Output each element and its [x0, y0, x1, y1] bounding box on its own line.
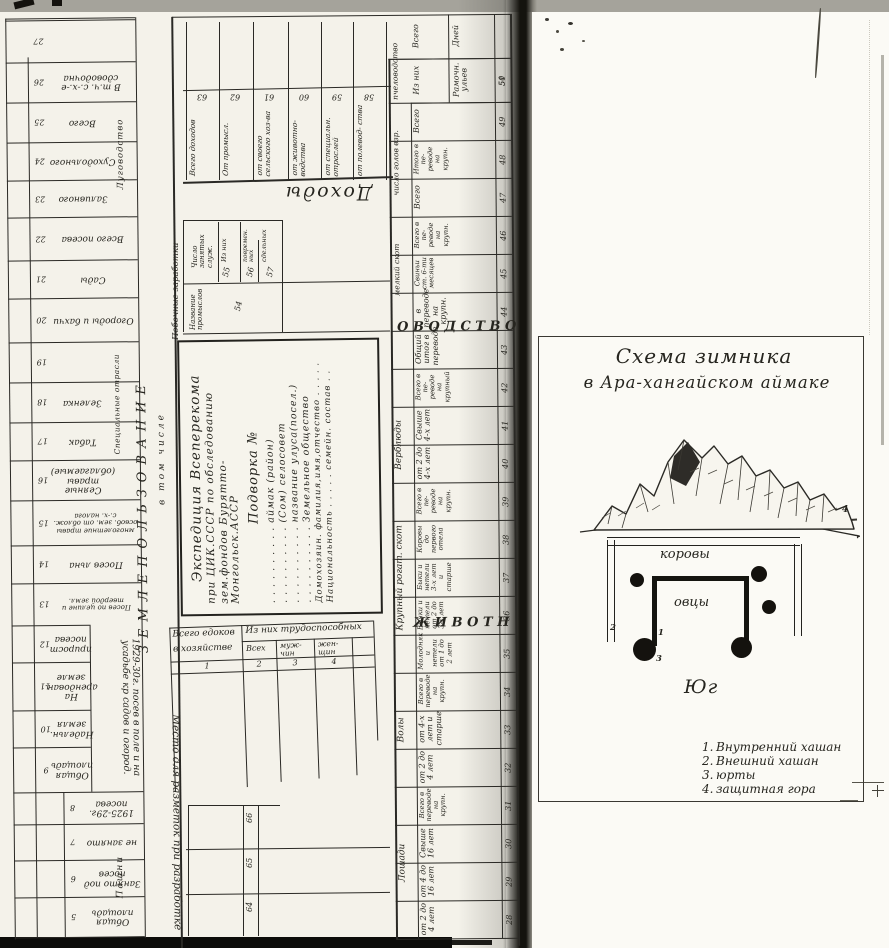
ls-col-number: 28 [506, 911, 518, 925]
ls-col-number: 40 [502, 455, 514, 469]
inner-number: 1 [658, 629, 664, 638]
ls-col-53-label: Дней [452, 16, 492, 55]
ls-col-text: Быки и нетели 3-х лет и старше [417, 560, 453, 593]
ls-col-text: Свыше 16 лет [419, 827, 436, 860]
ls-col-29-label: от 4 до 16 лет [419, 864, 499, 898]
ls-group-text: Лошади [398, 787, 409, 939]
ls-col-number: 39 [502, 493, 514, 507]
ls-col-49-label: Всего [413, 104, 493, 138]
ls-col-text: Свиньи ст. 6-ти месяцев [414, 257, 436, 290]
yurt-number: 3 [656, 655, 662, 664]
ls-col-number: 44 [501, 303, 513, 317]
legend-item: 1.Внутренний хашан [702, 741, 862, 755]
ls-col-text: Всего в пе- реводе на крупный [415, 370, 451, 403]
ls-col-number: 31 [505, 797, 517, 811]
ls-group-label: Верблюды [394, 407, 413, 483]
ls-col-30-label: Свыше 16 лет [419, 826, 499, 860]
ls-group-text: Волы [397, 673, 407, 787]
big-label-2: О В О Д С Т В О [387, 320, 527, 335]
yurt-dot [762, 600, 776, 614]
ls-col-47-label: Всего [413, 180, 493, 214]
ls-col-text: от 2 до 4 лет [420, 903, 437, 936]
ls-col-48-label: Итого в пе- реводе на крупн. [413, 142, 493, 176]
mountain-sketch [578, 412, 860, 548]
ls-col-number: 45 [500, 265, 512, 279]
ls-col-50-label: Из них [412, 60, 446, 99]
ls-col-38-label: Коровы до первого отела [416, 522, 496, 556]
ls-col-text: Рамочн. ульев [452, 60, 469, 99]
ls-col-text: от 2 до 4 лет [418, 751, 435, 784]
ls-col-41-label: Свыше 4-х лет [415, 408, 495, 442]
yurt-dot [731, 637, 752, 658]
ls-col-text: Дней [452, 16, 461, 55]
ls-col-text: Общий итог в переводе [415, 332, 440, 365]
big-label-1: Ж И В О Т Н [395, 616, 527, 631]
ls-col-text: от 2 до 4-х лет [416, 447, 433, 480]
legend-text: юрты [716, 769, 755, 782]
ls-col-number: 38 [503, 531, 515, 545]
ls-col-text: Из них [412, 61, 421, 100]
legend-item: 3.юрты [702, 769, 862, 783]
ls-col-52-label: Всего [412, 16, 446, 55]
yurt-dot [633, 638, 656, 661]
ls-col-37-label: Быки и нетели 3-х лет и старше [417, 560, 497, 594]
ls-col-number: 29 [505, 873, 517, 887]
ls-col-42-label: Всего в пе- реводе на крупный [415, 370, 495, 404]
ls-col-text: от 4 до 16 лет [419, 865, 436, 898]
ls-group-label: мелкий скот [393, 209, 412, 331]
ls-col-text: Коровы до первого отела [416, 522, 445, 555]
diagram-title-2: в Ара-хангайском аймаке [562, 374, 852, 391]
mountain-number: 4 [842, 506, 848, 515]
ls-col-text: Всего в пе- реводе на крупн. [414, 218, 450, 251]
ls-col-number: 48 [499, 151, 511, 165]
sheep-label: овцы [674, 596, 709, 610]
ls-group-label: Лошади [398, 787, 417, 939]
diagram-title-1: Схема зимника [594, 346, 814, 367]
yurt-dot [751, 566, 767, 582]
ls-col-text: от 4-х лет и старше [418, 712, 443, 745]
ls-col-number: 46 [500, 227, 512, 241]
legend-item: 4.защитная гора [702, 783, 862, 797]
ls-col-43-label: Общий итог в переводе [415, 332, 495, 366]
ls-col-35-label: Молодняк и нетели от 1 до 2 лет [417, 636, 497, 670]
ls-col-number: 42 [501, 379, 513, 393]
ls-col-number: 47 [500, 189, 512, 203]
ls-group-label: Крупный рогат. скот [395, 483, 415, 673]
inner-khashan-left [652, 576, 657, 646]
ls-col-number: 30 [505, 835, 517, 849]
ls-col-number: 35 [504, 645, 516, 659]
ls-col-number: 49 [499, 113, 511, 127]
ls-col-40-label: от 2 до 4-х лет [416, 446, 496, 480]
ls-group-label: пчеловодство [391, 29, 410, 114]
cows-label: коровы [660, 548, 710, 562]
ls-col-33-label: от 4-х лет и старше [418, 712, 498, 746]
ls-col-number: 33 [504, 721, 516, 735]
ls-col-number: 41 [502, 417, 514, 431]
ls-col-text: Всего [413, 181, 422, 214]
legend-number: 4. [702, 783, 713, 796]
ls-col-text: Всего в переводе на крупн. [418, 674, 447, 707]
south-label: Юг [684, 678, 718, 698]
ls-col-28-label: от 2 до 4 лет [420, 902, 500, 936]
legend-text: защитная гора [716, 783, 816, 796]
ls-col-text: Итого в пе- реводе на крупн. [413, 142, 449, 175]
ls-col-45-label: Свиньи ст. 6-ти месяцев [414, 256, 494, 290]
ls-col-text: Всего [412, 17, 421, 56]
ls-col-46-label: Всего в пе- реводе на крупн. [414, 218, 494, 252]
livestock-table: от 2 до 4 лет28от 4 до 16 лет29Свыше 16 … [0, 0, 534, 948]
diagram-border-box [538, 336, 864, 802]
ls-col-number: 51 [499, 72, 511, 86]
winter-camp-diagram: Схема зимникав Ара-хангайском аймаке4кор… [532, 12, 889, 948]
ls-group-label: Волы [397, 673, 416, 787]
ls-col-text: Свыше 4-х лет [415, 409, 432, 442]
ls-col-32-label: от 2 до 4 лет [418, 750, 498, 784]
legend-number: 2. [702, 755, 713, 768]
ls-col-34-label: Всего в переводе на крупн. [418, 674, 498, 708]
yurt-dot [630, 573, 644, 587]
ls-group-text: Верблюды [394, 407, 404, 483]
outer-number: 2 [610, 624, 616, 633]
ls-col-text: Всего в пе- реводе на крупн. [416, 484, 452, 517]
inner-khashan-right [744, 576, 749, 642]
ls-col-text: Всего в переводе на крупн. [419, 788, 448, 821]
outer-khashan-right [794, 544, 802, 636]
outer-khashan-top [607, 537, 800, 546]
ls-col-text: Молодняк и нетели от 1 до 2 лет [417, 636, 453, 669]
ls-col-number: 32 [504, 759, 516, 773]
legend-number: 1. [702, 741, 713, 754]
ls-group-text: число голов взр. [392, 117, 401, 209]
legend-text: Внутренний хашан [716, 741, 841, 754]
legend-item: 2.Внешний хашан [702, 755, 862, 769]
ls-col-text: Всего [413, 105, 422, 138]
ls-col-number: 37 [503, 569, 515, 583]
scanned-spread: { "left_page": { "section_land": "ЗЕМЛЕП… [0, 0, 889, 948]
ls-col-51-label: Рамочн. ульев [452, 60, 492, 99]
ls-col-39-label: Всего в пе- реводе на крупн. [416, 484, 496, 518]
ls-group-text: пчеловодство [391, 29, 400, 114]
ls-col-number: 43 [501, 341, 513, 355]
ls-group-label: число голов взр. [392, 117, 411, 209]
ls-group-text: Крупный рогат. скот [395, 483, 406, 673]
legend-number: 3. [702, 769, 713, 782]
legend-text: Внешний хашан [716, 755, 819, 768]
ls-col-31-label: Всего в переводе на крупн. [419, 788, 499, 822]
ls-group-text: мелкий скот [393, 209, 402, 331]
inner-khashan-top [652, 576, 749, 581]
ls-col-number: 34 [504, 683, 516, 697]
